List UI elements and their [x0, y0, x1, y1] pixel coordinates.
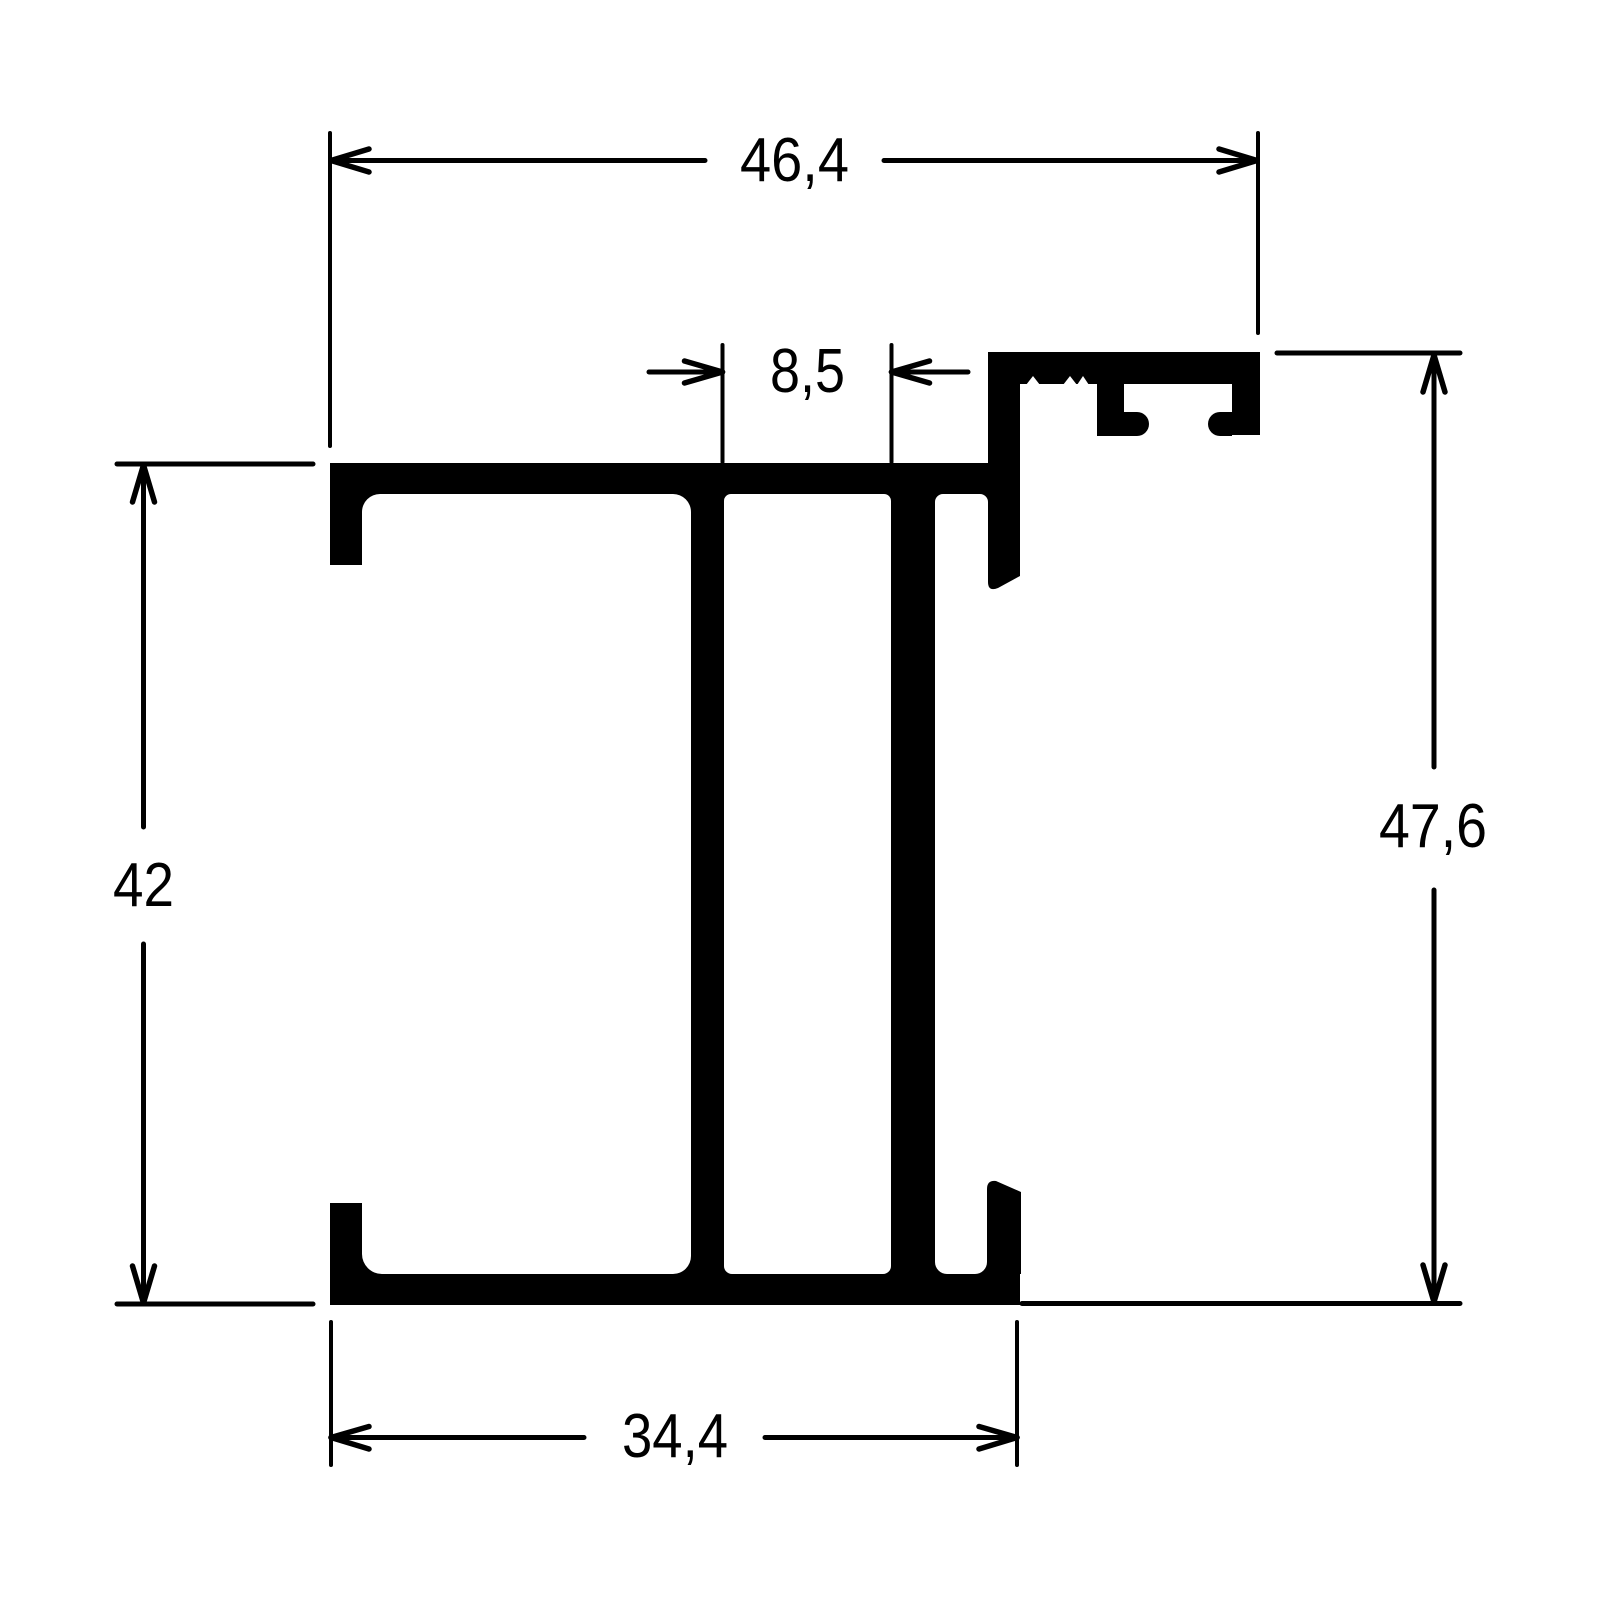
- svg-text:42: 42: [113, 851, 174, 920]
- svg-text:8,5: 8,5: [770, 337, 845, 406]
- svg-text:46,4: 46,4: [740, 126, 849, 195]
- svg-text:34,4: 34,4: [622, 1402, 728, 1471]
- svg-text:47,6: 47,6: [1379, 792, 1487, 861]
